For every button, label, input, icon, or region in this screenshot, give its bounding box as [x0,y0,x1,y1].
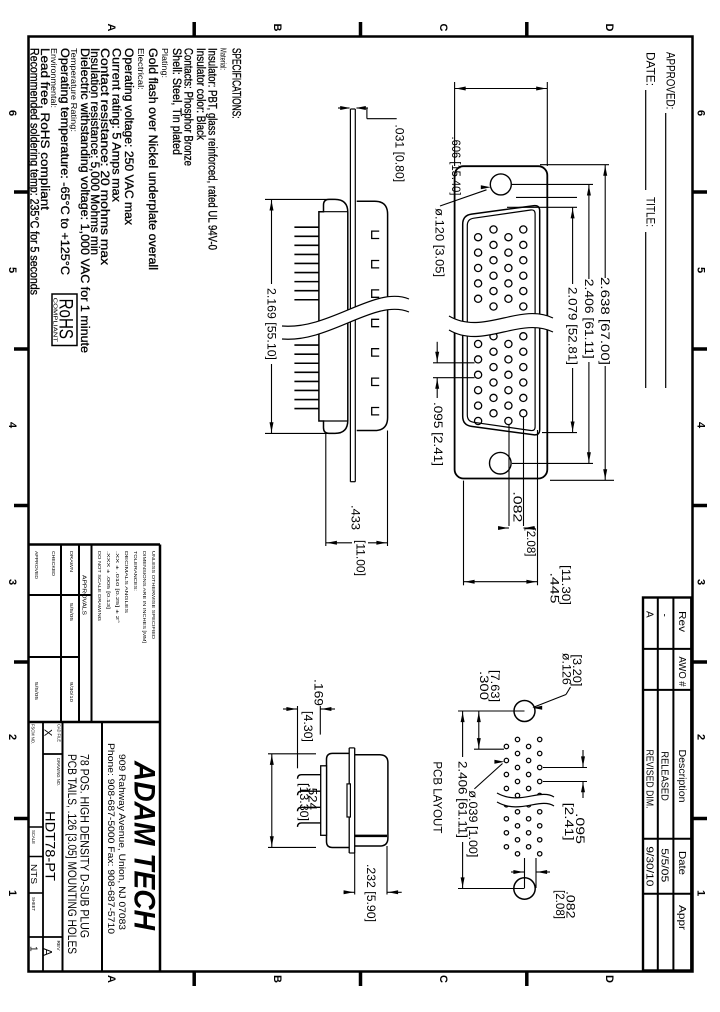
svg-text:ø.120 [3.05]: ø.120 [3.05] [433,208,445,277]
svg-text:Recommended soldering temp: 23: Recommended soldering temp: 235°C for 5 … [28,48,40,295]
svg-text:Insulator color: Black: Insulator color: Black [194,48,206,140]
svg-text:-: - [659,614,670,617]
svg-text:2.169 [55.10]: 2.169 [55.10] [265,288,277,360]
svg-text:Current rating: 5 Amps max: Current rating: 5 Amps max [110,48,122,202]
svg-text:[2.08]: [2.08] [524,528,536,557]
svg-text:SPECIFICATIONS:: SPECIFICATIONS: [230,48,242,119]
svg-text:Shell: Steel, Tin plated: Shell: Steel, Tin plated [170,48,182,155]
svg-text:Material:: Material: [218,48,228,70]
svg-text:APPROVED:: APPROVED: [664,52,676,109]
svg-text:ADAM TECH: ADAM TECH [128,760,161,931]
svg-text:C: C [437,24,449,32]
svg-text:A: A [105,975,117,983]
svg-text:.082: .082 [511,491,523,522]
svg-text:TOLERANCES:: TOLERANCES: [133,551,138,591]
svg-text:D: D [603,24,615,32]
svg-text:FSCM NO.: FSCM NO. [31,724,36,744]
svg-text:TITLE:: TITLE: [644,197,656,227]
svg-text:2.406 [61.11]: 2.406 [61.11] [456,761,468,838]
svg-text:DO NOT SCALE DRAWING: DO NOT SCALE DRAWING [97,551,102,622]
svg-text:1: 1 [695,890,707,896]
svg-text:ø.126: ø.126 [559,653,571,685]
svg-text:.445: .445 [548,573,560,604]
svg-text:2.406 [61.11]: 2.406 [61.11] [582,279,594,359]
svg-text:[11.30]: [11.30] [559,565,571,605]
svg-text:.095 [2.41]: .095 [2.41] [431,402,443,466]
svg-text:Operating voltage: 250 VAC max: Operating voltage: 250 VAC max [122,48,134,225]
svg-text:9/30/10: 9/30/10 [69,682,74,703]
svg-text:[2.08]: [2.08] [553,890,565,919]
svg-text:[13.30]: [13.30] [297,783,309,821]
svg-text:4: 4 [695,422,707,429]
svg-text:Contacts: Phosphor Bronze: Contacts: Phosphor Bronze [182,48,194,166]
svg-text:D: D [603,975,615,983]
svg-text:9/30/10: 9/30/10 [644,846,655,887]
svg-text:UNLESS OTHERWISE SPECIFIED: UNLESS OTHERWISE SPECIFIED [151,551,156,639]
svg-text:909 Rahway Avenue, Union, NJ 0: 909 Rahway Avenue, Union, NJ 07083 [116,754,127,930]
svg-text:Phone: 908-687-5000 Fax: 908-6: Phone: 908-687-5000 Fax: 908-687-5710 [105,743,116,934]
svg-text:SCALE: SCALE [31,830,36,844]
svg-text:5/5/05: 5/5/05 [34,682,39,701]
svg-text:2: 2 [695,734,707,740]
svg-text:Electrical:: Electrical: [136,48,146,90]
svg-text:COMPLIANT: COMPLIANT [52,298,58,343]
svg-text:[4.30]: [4.30] [301,711,313,742]
svg-text:DRAWING NO.: DRAWING NO. [56,758,61,786]
svg-text:.169: .169 [312,679,324,706]
svg-text:5/5/05: 5/5/05 [69,603,74,622]
svg-text:HDT78-PT: HDT78-PT [43,811,59,881]
svg-text:Rev: Rev [676,611,687,632]
svg-text:C: C [437,975,449,983]
svg-text:Gold flash over Nickel underpl: Gold flash over Nickel underplate overal… [146,48,158,270]
svg-text:6: 6 [695,110,707,116]
svg-text:PCB TAILS, .126 [3.05] MOUNTIN: PCB TAILS, .126 [3.05] MOUNTING HOLES [65,754,79,954]
svg-text:4: 4 [6,422,18,429]
svg-text:DRAWN: DRAWN [69,551,74,572]
svg-text:SHEET: SHEET [31,897,36,911]
svg-text:RELEASED: RELEASED [659,751,670,800]
svg-text:A: A [105,24,117,32]
svg-text:.606 [15.40]: .606 [15.40] [449,137,461,196]
svg-text:2.079 [52.81]: 2.079 [52.81] [566,287,578,365]
svg-text:3: 3 [6,579,18,585]
svg-text:.433: .433 [349,505,361,530]
svg-text:5: 5 [695,267,707,273]
svg-text:CAD FILE: CAD FILE [57,724,62,742]
svg-text:Description: Description [676,750,687,803]
svg-text:2: 2 [6,734,18,740]
svg-text:NTS: NTS [29,864,39,884]
svg-text:[3.20]: [3.20] [570,654,582,686]
svg-text:Plating:: Plating: [160,48,170,78]
svg-text:.031 [0.80]: .031 [0.80] [393,124,405,182]
svg-text:[11.00]: [11.00] [354,540,366,576]
svg-text:B: B [271,24,283,32]
svg-text:Date: Date [676,851,687,875]
svg-text:5: 5 [6,267,18,273]
svg-text:REVISED DIM.: REVISED DIM. [644,750,655,809]
svg-text:5/5/05: 5/5/05 [659,848,670,883]
svg-text:DECIMALS ANGLES: DECIMALS ANGLES [124,551,129,613]
svg-text:ø.039 [1.00]: ø.039 [1.00] [466,790,478,857]
svg-text:A: A [644,611,655,618]
svg-text:APPROVED: APPROVED [34,551,39,580]
svg-text:2.638 [67.00]: 2.638 [67.00] [598,277,610,365]
svg-text:B: B [271,975,283,983]
svg-text:.300: .300 [477,671,489,700]
svg-text:REV: REV [56,941,61,951]
svg-text:DATE:: DATE: [644,52,656,86]
svg-text:PCB LAYOUT: PCB LAYOUT [431,761,445,834]
svg-text:.XX ± .010 [0.25] ± 2°: .XX ± .010 [0.25] ± 2° [115,551,120,623]
svg-text:[2.41]: [2.41] [562,803,574,841]
svg-text:.232 [5.90]: .232 [5.90] [364,864,376,922]
svg-text:AWO #: AWO # [676,657,687,687]
svg-text:Appr: Appr [676,905,687,931]
svg-text:1: 1 [28,946,39,952]
svg-text:.XXX ± .005 [0.13]: .XXX ± .005 [0.13] [106,551,111,609]
svg-text:DIMENSIONS ARE IN INCHES [MM]: DIMENSIONS ARE IN INCHES [MM] [142,551,147,643]
svg-text:6: 6 [6,110,18,116]
svg-text:3: 3 [695,579,707,585]
svg-text:1: 1 [6,890,18,896]
svg-text:Insulator: PBT, glass reinforc: Insulator: PBT, glass reinforced, rated … [206,48,218,250]
svg-text:CHECKED: CHECKED [51,551,56,577]
svg-text:[7.63]: [7.63] [488,670,500,702]
